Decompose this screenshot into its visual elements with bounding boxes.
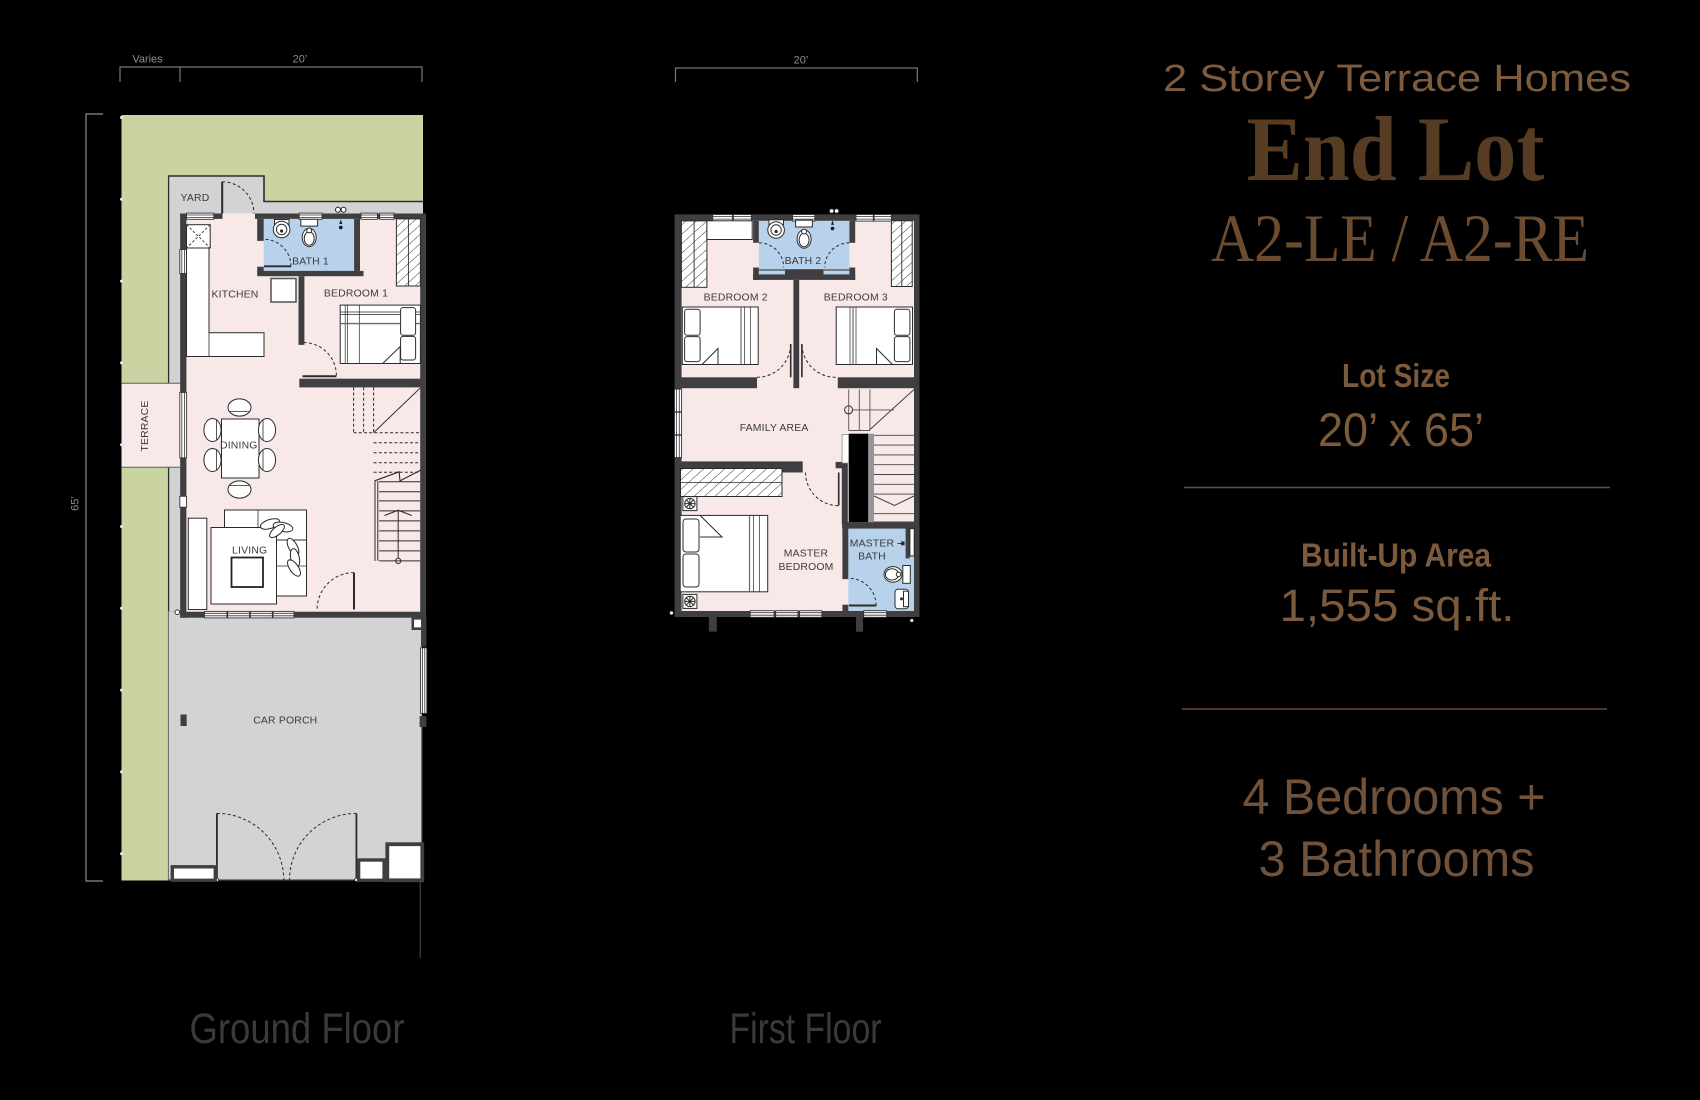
svg-text:BEDROOM: BEDROOM [778,562,833,573]
svg-text:4 Bedrooms +: 4 Bedrooms + [1243,769,1546,825]
svg-text:20’: 20’ [794,55,809,67]
svg-text:TERRACE: TERRACE [140,400,151,451]
svg-text:20’: 20’ [293,54,308,66]
svg-text:BATH: BATH [858,552,886,563]
svg-text:3 Bathrooms: 3 Bathrooms [1259,831,1535,887]
svg-text:2 Storey Terrace Homes: 2 Storey Terrace Homes [1163,58,1631,100]
svg-text:MASTER: MASTER [850,539,895,550]
svg-text:First Floor: First Floor [730,1005,882,1053]
svg-text:End Lot: End Lot [1247,98,1545,200]
svg-text:20’ x 65’: 20’ x 65’ [1318,403,1484,456]
svg-text:BEDROOM 3: BEDROOM 3 [824,293,888,304]
svg-text:A2-LE / A2-RE: A2-LE / A2-RE [1211,200,1589,276]
svg-text:BEDROOM 2: BEDROOM 2 [704,293,768,304]
svg-text:FAMILY AREA: FAMILY AREA [740,423,809,434]
svg-text:Lot Size: Lot Size [1342,357,1450,394]
svg-text:65’: 65’ [70,496,82,511]
svg-text:KITCHEN: KITCHEN [211,289,258,300]
svg-text:MASTER: MASTER [784,549,829,560]
svg-text:Built-Up Area: Built-Up Area [1301,537,1492,574]
svg-text:LIVING: LIVING [232,546,267,557]
svg-text:BATH 1: BATH 1 [292,257,329,268]
svg-text:DINING: DINING [220,441,258,452]
svg-text:BATH 2: BATH 2 [785,256,822,267]
svg-text:Varies: Varies [132,54,163,66]
svg-text:YARD: YARD [181,193,210,204]
svg-text:Ground Floor: Ground Floor [190,1005,405,1053]
svg-text:CAR PORCH: CAR PORCH [253,716,317,727]
svg-text:1,555 sq.ft.: 1,555 sq.ft. [1280,580,1515,631]
svg-text:BEDROOM 1: BEDROOM 1 [324,288,388,299]
